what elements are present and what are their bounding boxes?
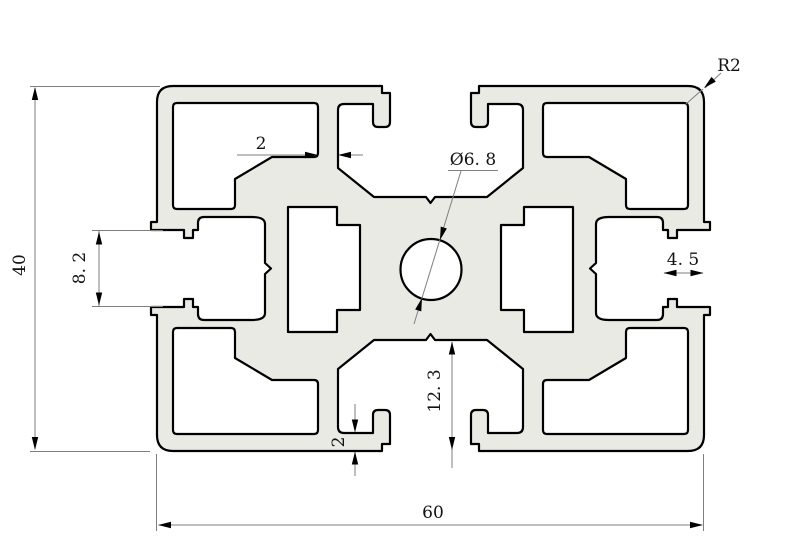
cad-drawing: 40 8. 2 2 Ø6. 8 R2 4. 5: [0, 0, 804, 557]
arrow-left-icon: [338, 152, 351, 158]
dim-corner-radius: R2: [686, 56, 741, 104]
arrow-up-icon: [352, 452, 358, 465]
dim-overall-width: 60: [157, 454, 704, 531]
dim-top-web-label: 2: [256, 134, 267, 154]
dim-top-web: 2: [237, 134, 363, 158]
dim-side-lip: 4. 5: [664, 250, 704, 276]
arrow-leader-icon: [702, 77, 716, 90]
arrow-down-icon: [96, 293, 102, 306]
arrow-down-icon: [32, 437, 38, 450]
dim-overall-height-label: 40: [10, 254, 30, 276]
dim-bottom-chamber-label: 12. 3: [425, 369, 445, 412]
arrow-left-icon: [158, 522, 171, 528]
dim-slot-opening-label: 8. 2: [70, 252, 90, 284]
arrow-up-icon: [449, 342, 455, 355]
drawing-canvas: 40 8. 2 2 Ø6. 8 R2 4. 5: [0, 0, 804, 557]
dim-overall-width-label: 60: [422, 503, 444, 523]
arrow-down-icon: [449, 437, 455, 450]
arrow-up-icon: [32, 87, 38, 100]
arrow-right-icon: [690, 522, 703, 528]
arrow-right-icon: [691, 270, 704, 276]
arrow-up-icon: [96, 232, 102, 245]
arrow-left-icon: [664, 270, 677, 276]
dim-slot-opening: 8. 2: [70, 231, 163, 307]
dim-center-hole-label: Ø6. 8: [450, 150, 496, 170]
dim-corner-radius-label: R2: [717, 56, 741, 76]
dim-bottom-chamber: 12. 3: [425, 342, 455, 469]
dim-side-lip-label: 4. 5: [667, 250, 699, 270]
dim-bottom-wall-label: 2: [329, 437, 349, 448]
arrow-down-icon: [352, 420, 358, 433]
